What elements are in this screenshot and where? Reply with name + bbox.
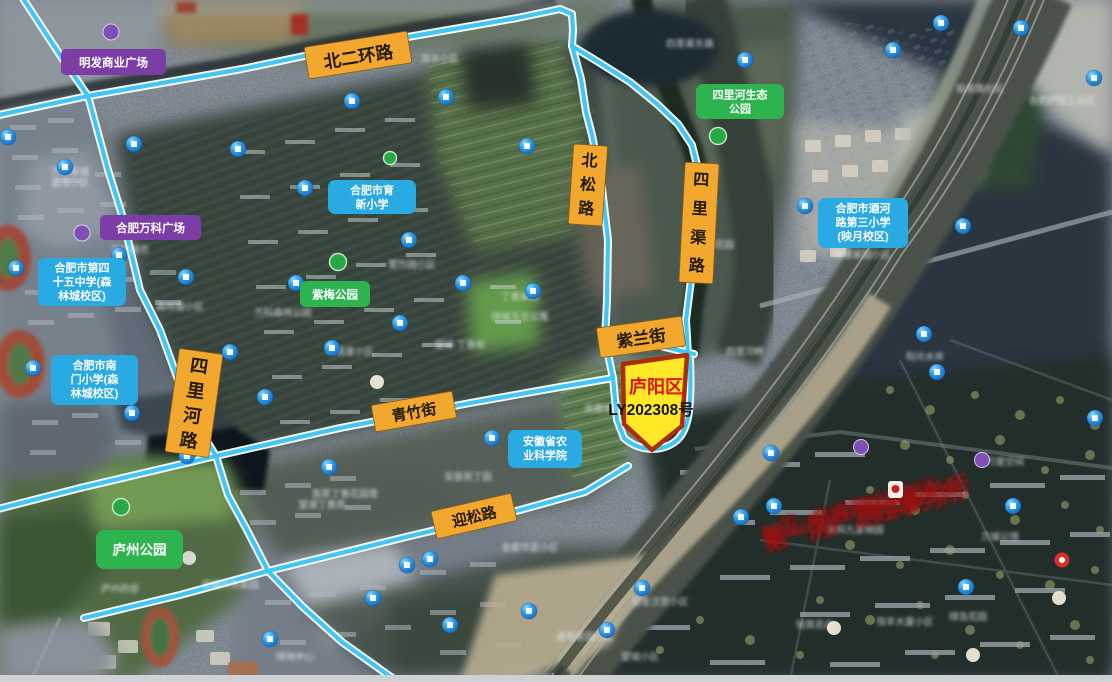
svg-text:绿岛花园: 绿岛花园 <box>949 611 987 623</box>
svg-text:绿城玉兰公寓: 绿城玉兰公寓 <box>491 311 548 323</box>
svg-text:林城校区): 林城校区) <box>58 289 106 303</box>
svg-text:路: 路 <box>688 256 706 276</box>
svg-text:合肥万科广场: 合肥万科广场 <box>116 221 185 235</box>
svg-text:路: 路 <box>578 198 596 218</box>
svg-text:北: 北 <box>581 152 598 171</box>
svg-text:万度空间: 万度空间 <box>986 456 1024 468</box>
svg-text:四: 四 <box>693 172 710 190</box>
svg-text:四: 四 <box>189 355 210 377</box>
svg-text:翠竹园小区: 翠竹园小区 <box>388 259 436 271</box>
svg-text:荷塘家园小区: 荷塘家园小区 <box>833 249 891 261</box>
svg-text:合肥市南: 合肥市南 <box>73 358 117 372</box>
svg-text:临泉路社区: 临泉路社区 <box>956 83 1004 95</box>
svg-text:松: 松 <box>579 174 596 194</box>
svg-text:万城公馆: 万城公馆 <box>981 531 1019 543</box>
svg-text:翡翠丁香花园里: 翡翠丁香花园里 <box>312 488 379 500</box>
svg-text:(映月校区): (映月校区) <box>837 229 889 243</box>
svg-text:合肥庐阳工业区: 合肥庐阳工业区 <box>1029 95 1096 107</box>
svg-text:渠: 渠 <box>690 228 708 248</box>
svg-text:里: 里 <box>691 200 708 219</box>
svg-text:望湖丁香苑: 望湖丁香苑 <box>298 499 346 511</box>
svg-text:蓝湾小区: 蓝湾小区 <box>51 177 90 189</box>
svg-text:合肥市逎河: 合肥市逎河 <box>836 201 891 215</box>
svg-text:恒丰大厦小区: 恒丰大厦小区 <box>876 616 934 628</box>
svg-text:河: 河 <box>182 405 203 427</box>
svg-text:路第三小学: 路第三小学 <box>836 215 891 229</box>
svg-text:新小学: 新小学 <box>356 197 389 211</box>
svg-text:合肥市育: 合肥市育 <box>350 183 394 197</box>
svg-text:紫梅公园: 紫梅公园 <box>312 288 358 302</box>
svg-text:四里河生态: 四里河生态 <box>713 88 768 102</box>
svg-text:明发商业广场: 明发商业广场 <box>79 56 148 70</box>
svg-text:四里渠东路: 四里渠东路 <box>666 38 714 50</box>
svg-text:公园: 公园 <box>729 103 751 116</box>
svg-text:望城小区: 望城小区 <box>621 651 660 663</box>
svg-text:望城·丁香街: 望城·丁香街 <box>435 339 486 351</box>
svg-text:里: 里 <box>185 380 206 402</box>
svg-text:十五中学(森: 十五中学(森 <box>53 275 113 289</box>
svg-text:绿地中心: 绿地中心 <box>276 651 315 663</box>
svg-text:庐阳区: 庐阳区 <box>629 376 683 397</box>
svg-text:安徽省农: 安徽省农 <box>523 434 567 448</box>
svg-text:林城校区): 林城校区) <box>71 386 119 400</box>
svg-text:双水小区: 双水小区 <box>421 53 460 65</box>
svg-text:四里河畔: 四里河畔 <box>726 346 765 358</box>
svg-text:万科森林公园: 万科森林公园 <box>254 307 311 319</box>
svg-text:LY202308号: LY202308号 <box>608 401 694 419</box>
svg-text:铂金汉宫小区: 铂金汉宫小区 <box>631 596 689 608</box>
svg-text:阳光水岸: 阳光水岸 <box>906 351 945 363</box>
svg-text:金都华庭小区: 金都华庭小区 <box>501 542 559 554</box>
svg-text:合肥市第四: 合肥市第四 <box>55 261 110 275</box>
svg-text:庐州公园: 庐州公园 <box>113 542 167 558</box>
svg-text:森林橙小区: 森林橙小区 <box>156 301 204 313</box>
svg-text:安居苑丁园: 安居苑丁园 <box>444 471 492 483</box>
svg-text:业科学院: 业科学院 <box>523 448 567 462</box>
svg-text:荷塘月色家园: 荷塘月色家园 <box>201 579 258 591</box>
svg-text:庐州府邸: 庐州府邸 <box>101 583 140 595</box>
svg-text:门小学(森: 门小学(森 <box>71 372 120 386</box>
